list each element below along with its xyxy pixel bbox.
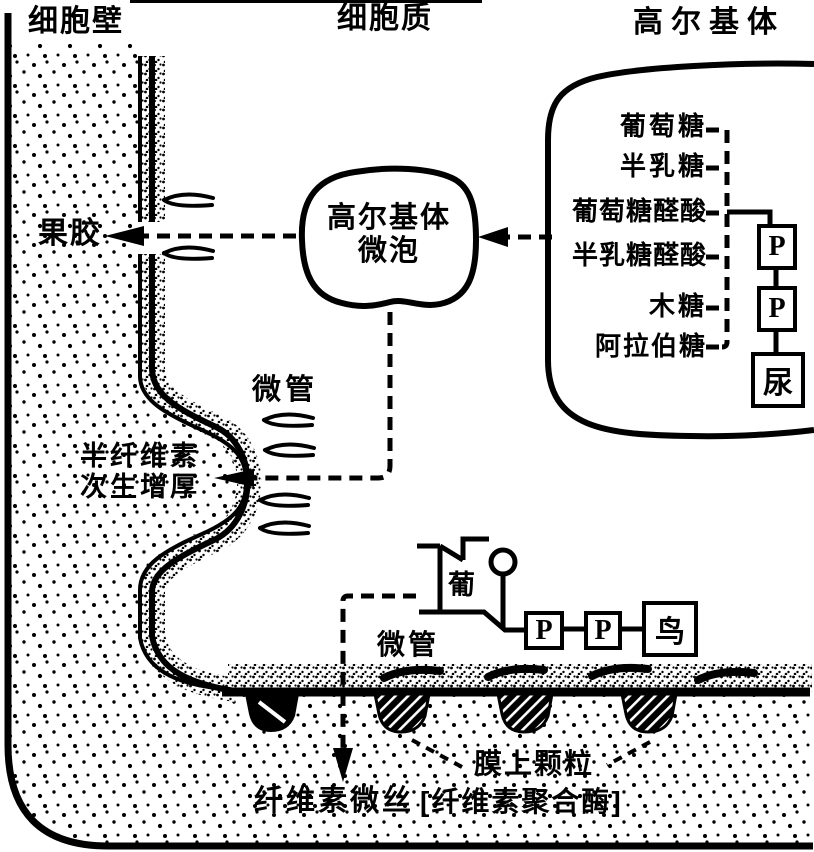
sugar-xylose: 木糖 — [649, 292, 707, 322]
label-pectin: 果胶 — [38, 217, 102, 252]
golgi-vesicle-label: 高尔基体 微泡 — [308, 202, 470, 269]
gdp-phosphate-box-1: P — [524, 611, 564, 650]
label-cellulose-microfibril: 纤维素微丝 — [254, 785, 414, 818]
header-golgi-body: 高尔基体 — [633, 6, 785, 41]
vesicle-arrowhead — [478, 227, 508, 247]
golgi-vesicle-label-line2: 微泡 — [358, 235, 420, 268]
header-cytoplasm: 细胞质 — [337, 2, 433, 37]
udp-phosphate-box-1: P — [757, 224, 797, 270]
label-microtubule-upper: 微管 — [252, 374, 318, 407]
plasma-membrane-inner-line — [152, 56, 248, 691]
label-membrane-particle: 膜上颗粒 — [474, 748, 594, 780]
membrane-speckle-band — [153, 56, 249, 690]
label-microtubule-lower: 微管 — [377, 629, 439, 661]
sugar-galacturonic-acid: 半乳糖醛酸 — [572, 241, 707, 271]
microtubule-pair-1 — [264, 414, 313, 425]
microtubule-pair-2 — [265, 444, 314, 455]
diagram-page: { "headers": { "cell_wall": "细胞壁", "cyto… — [0, 0, 814, 852]
sugar-galactose: 半乳糖 — [620, 152, 707, 182]
label-hemicellulose-line2: 次生增厚 — [80, 472, 200, 503]
label-cellulose-polymerase: [纤维素聚合酶] — [420, 786, 623, 818]
header-cell-wall: 细胞壁 — [28, 5, 124, 40]
vesicle-profile-upper-1 — [164, 194, 213, 205]
udp-phosphate-box-2: P — [757, 286, 797, 332]
vesicle-profile-upper-2 — [164, 247, 213, 258]
gdp-guanosine-box: 鸟 — [642, 601, 698, 657]
golgi-vesicle-label-line1: 高尔基体 — [327, 202, 451, 235]
gdp-phosphate-box-2: P — [584, 611, 622, 650]
sugar-glucose: 葡萄糖 — [620, 112, 707, 142]
sugar-arabinose: 阿拉伯糖 — [595, 332, 707, 362]
label-glucose-ring: 葡 — [448, 570, 477, 601]
label-hemicellulose-line1: 半纤维素 — [80, 441, 200, 472]
label-hemicellulose: 半纤维素 次生增厚 — [80, 441, 200, 503]
udp-uridine-box: 尿 — [751, 352, 805, 408]
udp-link-line — [727, 212, 770, 224]
sugar-collector-line — [706, 130, 727, 347]
sugar-glucuronic-acid: 葡萄糖醛酸 — [572, 197, 707, 227]
microtubule-pair-4 — [260, 522, 309, 533]
microtubule-pair-3 — [260, 494, 309, 505]
